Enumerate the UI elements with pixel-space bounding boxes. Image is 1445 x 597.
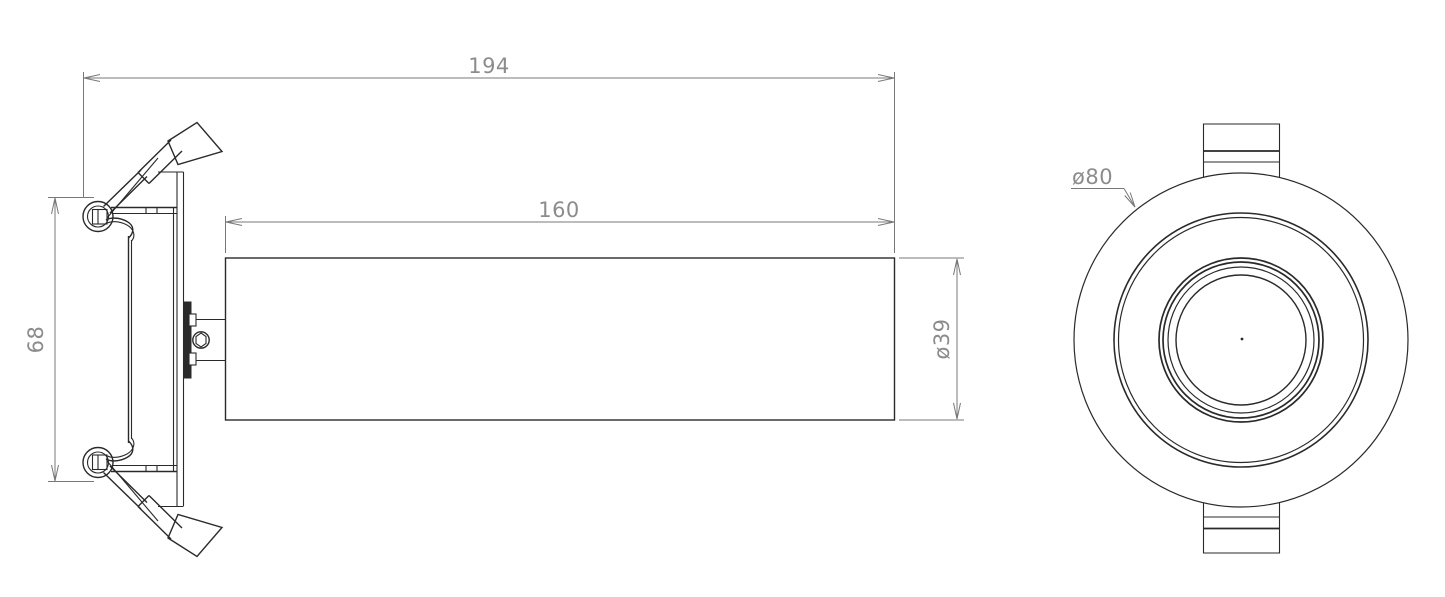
tab-bottom — [1204, 503, 1280, 553]
trim-curl-top-outer — [106, 218, 133, 238]
trim-ring-circle-inner — [1119, 218, 1364, 463]
tab-top — [1204, 124, 1280, 177]
face-outer-circle — [1074, 173, 1408, 507]
arrow-80 — [1125, 193, 1135, 208]
spring-clip-bottom — [83, 448, 222, 557]
dim-label-overall-length: 194 — [468, 54, 510, 78]
dim-label-face-diameter: ø80 — [1072, 165, 1113, 189]
center-mark — [1241, 338, 1244, 341]
dim-label-body-length: 160 — [538, 198, 580, 222]
spring-clip-top — [83, 123, 222, 232]
trim-ring — [106, 218, 134, 461]
bezel-circle-1 — [1159, 258, 1323, 422]
spring-wire-bottom — [93, 455, 108, 470]
dim-label-recess-height: 68 — [24, 326, 48, 354]
front-view — [1074, 124, 1408, 553]
spring-body-top — [138, 140, 182, 184]
dim-label-tube-diameter: ø39 — [930, 318, 954, 359]
dimensions: 194 160 68 ø39 — [24, 54, 1135, 482]
lamp-tube-outline — [226, 258, 895, 420]
bezel-circle-2 — [1163, 262, 1319, 418]
dim-face-diameter: ø80 — [1071, 165, 1135, 207]
trim-ring-circle-outer — [1114, 213, 1368, 467]
can-top-notch — [146, 208, 157, 214]
dim-overall-length: 194 — [84, 54, 895, 253]
bracket-bar — [185, 302, 192, 378]
spring-paddle-top — [168, 123, 222, 165]
adjustment-bracket — [185, 302, 226, 378]
bezel-circle-3 — [1168, 267, 1314, 413]
spring-wire-top — [93, 210, 108, 225]
can-bottom-notch — [146, 466, 157, 472]
recessed-can — [111, 208, 177, 472]
dim-recess-height: 68 — [24, 198, 94, 482]
dim-tube-diameter: ø39 — [899, 258, 964, 420]
bracket-notch-top — [189, 314, 196, 326]
leader-line-80 — [1124, 189, 1135, 208]
side-view — [83, 123, 895, 557]
trim-curl-bottom-outer — [106, 441, 133, 461]
spring-body-bottom — [138, 496, 182, 540]
dim-body-length: 160 — [226, 198, 895, 253]
hex-socket-icon — [196, 333, 206, 347]
lens-circle — [1176, 275, 1306, 405]
spring-paddle-bottom — [168, 515, 222, 557]
bracket-notch-bottom — [189, 353, 196, 365]
drawing-sheet: 194 160 68 ø39 — [0, 0, 1445, 597]
mounting-plate — [158, 172, 184, 507]
pivot-bolt-head — [193, 332, 209, 348]
technical-drawing: 194 160 68 ø39 — [0, 0, 1445, 597]
